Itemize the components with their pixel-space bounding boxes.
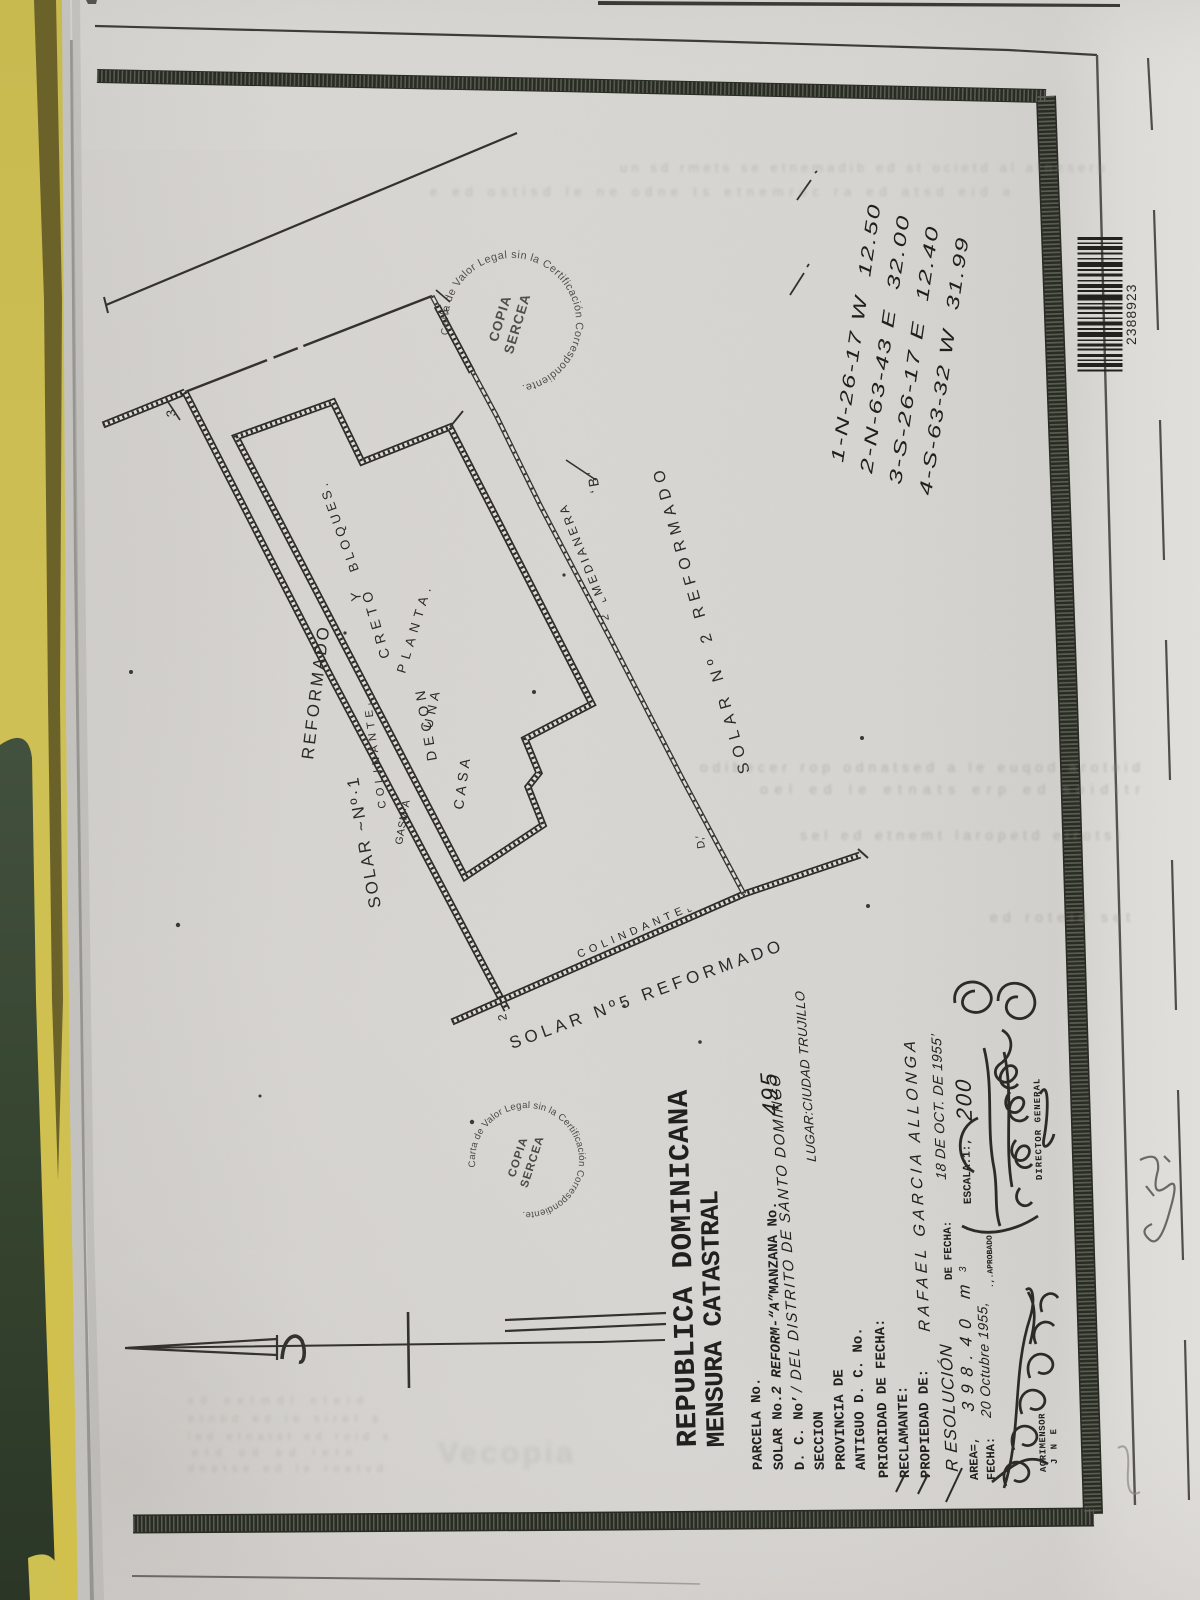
svg-text:AGRIMENSOR: AGRIMENSOR — [1037, 1413, 1049, 1472]
svg-text:FECHA:: FECHA: — [984, 1437, 999, 1481]
svg-text:2388923: 2388923 — [1123, 283, 1139, 345]
svg-text:.,.APROBADO: .,.APROBADO — [986, 1235, 996, 1288]
svg-text:RECLAMANTE:: RECLAMANTE: — [896, 1385, 914, 1478]
svg-text:200: 200 — [951, 1077, 978, 1122]
svg-text:PROVINCIA DE: PROVINCIA DE — [831, 1369, 850, 1470]
svg-text:Y: Y — [347, 588, 364, 602]
svg-text:PARCELA No.: PARCELA No. — [749, 1377, 767, 1470]
svg-text:un sd rmets se etnemadib ed st: un sd rmets se etnemadib ed st ocietd al… — [620, 160, 1105, 175]
svg-text:SECCION: SECCION — [811, 1411, 829, 1470]
svg-text:DE FECHA:: DE FECHA: — [942, 1220, 956, 1280]
svg-text:3: 3 — [958, 1266, 969, 1272]
svg-text:D. C. No’: D. C. No’ — [791, 1394, 809, 1470]
svg-text:AREA=,: AREA=, — [967, 1437, 982, 1481]
svg-text:Vecopia: Vecopia — [438, 1435, 576, 1470]
svg-text:J N E: J N E — [1049, 1427, 1060, 1464]
svg-text:D,′: D,′ — [694, 835, 708, 850]
svg-text:oel ed le etnats erp ed soidit: oel ed le etnats erp ed soiditr — [760, 781, 1140, 797]
svg-text:PROPIEDAD DE:: PROPIEDAD DE: — [916, 1369, 935, 1479]
